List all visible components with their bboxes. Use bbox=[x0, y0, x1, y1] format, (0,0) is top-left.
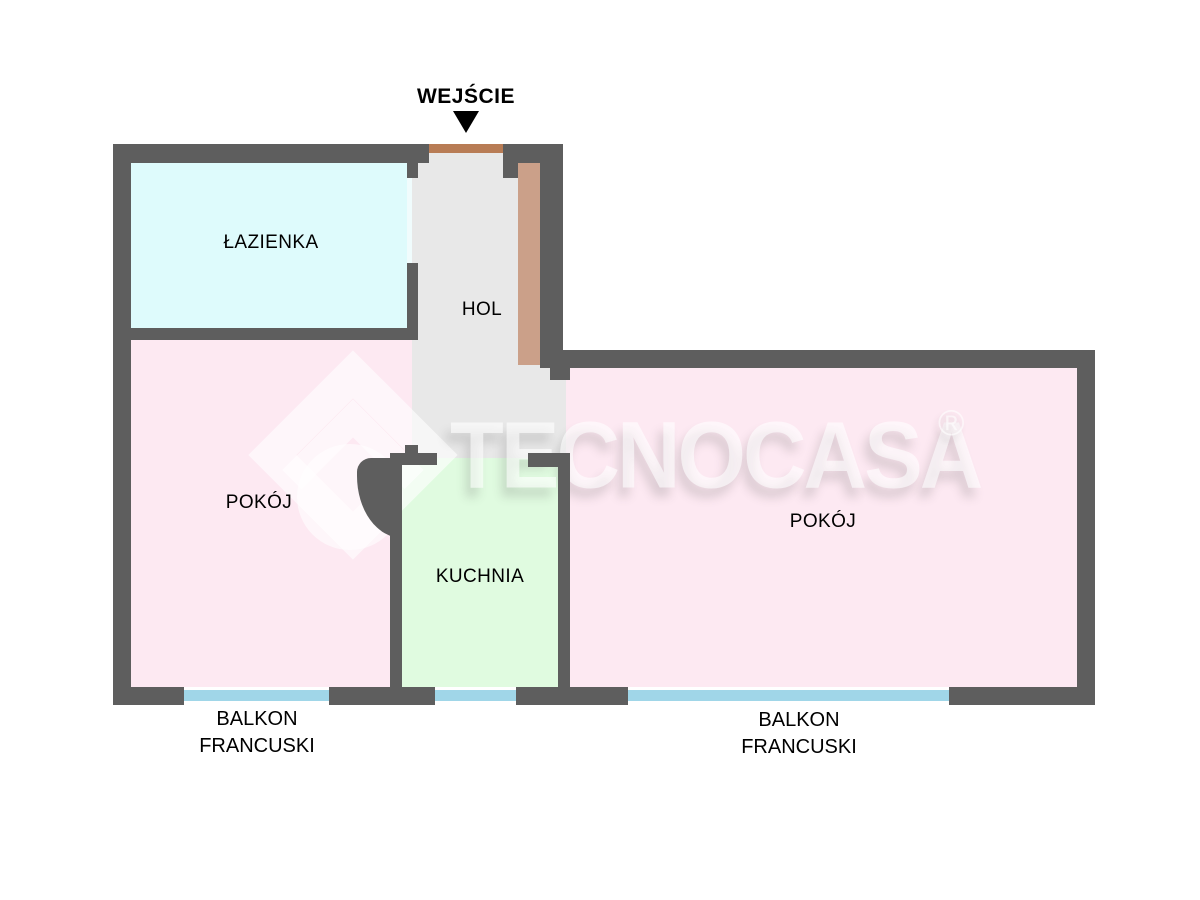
watermark-registered-mark: ® bbox=[938, 402, 965, 444]
room-pokoj-left-label: POKÓJ bbox=[226, 492, 292, 514]
wall-bottom-segment-2 bbox=[329, 687, 435, 705]
wall-top-left bbox=[113, 144, 429, 163]
wall-hall-left-stub bbox=[405, 445, 418, 455]
entrance-door bbox=[429, 144, 503, 153]
balcony-left-label: BALKON FRANCUSKI bbox=[199, 706, 315, 760]
wall-bathroom-right-upper bbox=[407, 144, 418, 178]
wardrobe bbox=[518, 163, 540, 365]
wall-bottom-segment-3 bbox=[516, 687, 628, 705]
wall-right-room-top bbox=[540, 350, 1095, 368]
wall-right-room-stub bbox=[550, 368, 570, 380]
wall-bottom-segment-1 bbox=[113, 687, 184, 705]
entrance-recess-floor bbox=[429, 153, 503, 163]
window-left-room bbox=[184, 690, 329, 701]
wall-bathroom-bottom bbox=[113, 328, 418, 340]
wall-outer-left bbox=[113, 144, 131, 705]
balcony-right-line1: BALKON bbox=[741, 707, 857, 734]
wall-entrance-stub bbox=[503, 163, 518, 178]
room-lazienka-label: ŁAZIENKA bbox=[223, 232, 318, 254]
balcony-left-line2: FRANCUSKI bbox=[199, 733, 315, 760]
balcony-left-line1: BALKON bbox=[199, 706, 315, 733]
wall-bottom-segment-4 bbox=[949, 687, 1095, 705]
floor-plan: WEJŚCIE TECNOCASA ® ŁAZIENKA HOL POKÓJ K… bbox=[0, 0, 1200, 900]
entrance-label: WEJŚCIE bbox=[417, 85, 515, 109]
room-hol-label: HOL bbox=[462, 299, 502, 321]
entrance-arrow-icon bbox=[453, 111, 479, 133]
room-kuchnia-label: KUCHNIA bbox=[436, 566, 524, 588]
room-pokoj-right-label: POKÓJ bbox=[790, 511, 856, 533]
wall-outer-right bbox=[1077, 350, 1095, 705]
balcony-right-label: BALKON FRANCUSKI bbox=[741, 707, 857, 761]
window-right-room bbox=[628, 690, 949, 701]
wall-hall-right bbox=[540, 144, 563, 350]
wall-kitchen-left bbox=[390, 453, 402, 687]
balcony-right-line2: FRANCUSKI bbox=[741, 734, 857, 761]
wall-kitchen-right bbox=[558, 453, 570, 687]
window-kitchen bbox=[435, 690, 516, 701]
